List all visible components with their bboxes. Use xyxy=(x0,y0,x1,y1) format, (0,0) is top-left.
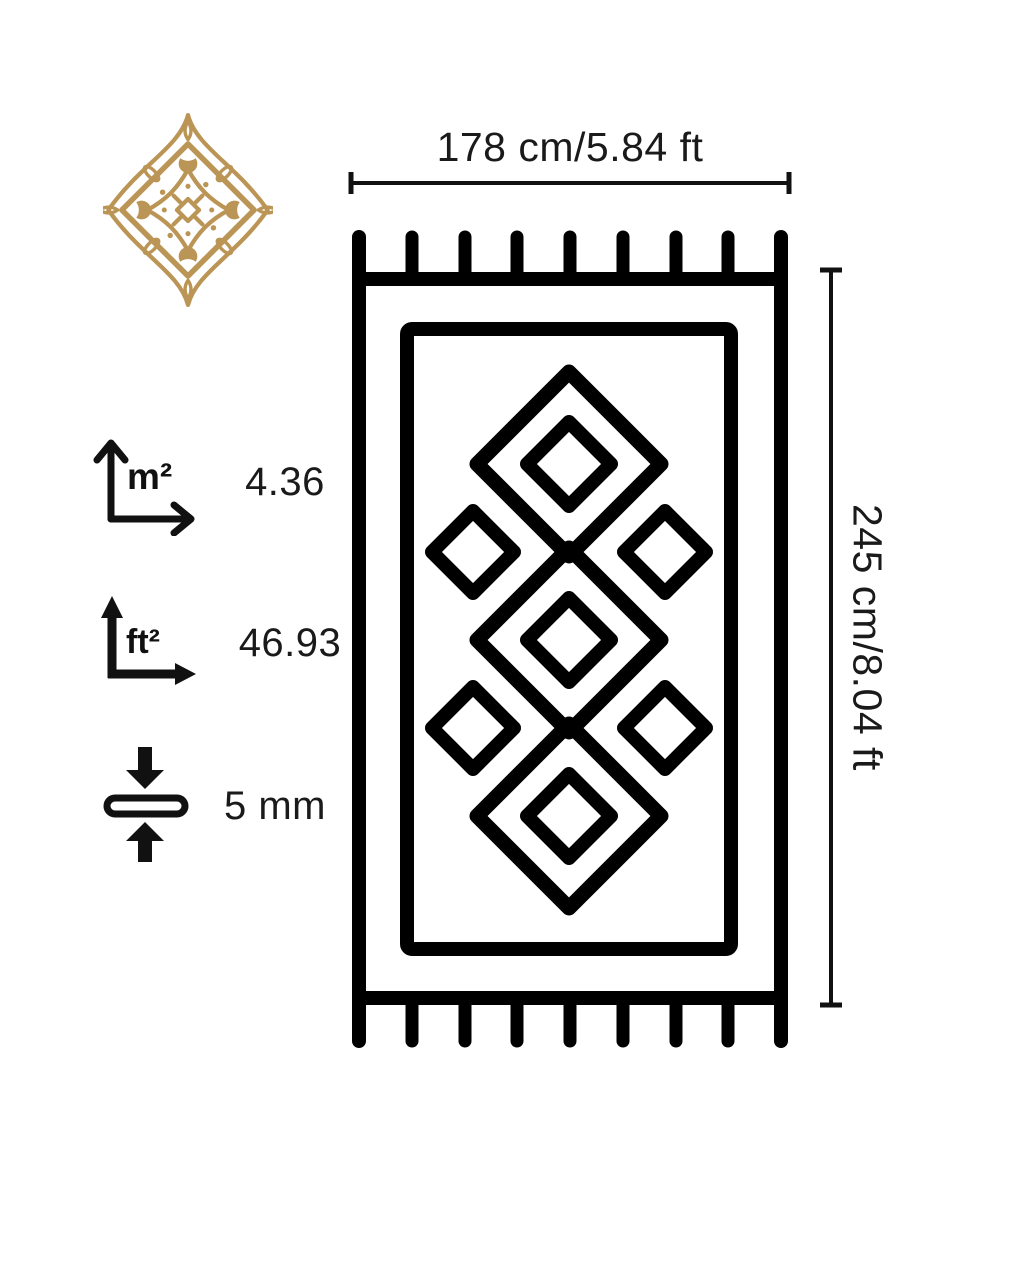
width-dimension-line xyxy=(340,160,800,206)
ornament-ogee-diamond xyxy=(147,169,228,250)
area-m2-unit: m² xyxy=(127,456,172,498)
arabesque-medallion-icon xyxy=(103,110,273,310)
thickness-value: 5 mm xyxy=(200,784,350,829)
area-ft2-value: 46.93 xyxy=(215,621,365,666)
rug-illustration xyxy=(340,215,800,1060)
rug-large-diamonds xyxy=(477,372,661,908)
rug-inner-diamonds xyxy=(527,422,611,858)
thickness-icon xyxy=(95,740,200,870)
rug-fringe-bottom xyxy=(412,1001,728,1041)
rug-spec-diagram: 178 cm/5.84 ft 245 cm/8.04 ft xyxy=(0,0,1024,1280)
area-m2-value: 4.36 xyxy=(210,460,360,505)
rug-outer-frame xyxy=(352,237,788,1041)
rug-fringe-top xyxy=(412,237,728,276)
height-dimension-label: 245 cm/8.04 ft xyxy=(842,270,892,1005)
area-ft2-unit: ft² xyxy=(126,623,160,662)
